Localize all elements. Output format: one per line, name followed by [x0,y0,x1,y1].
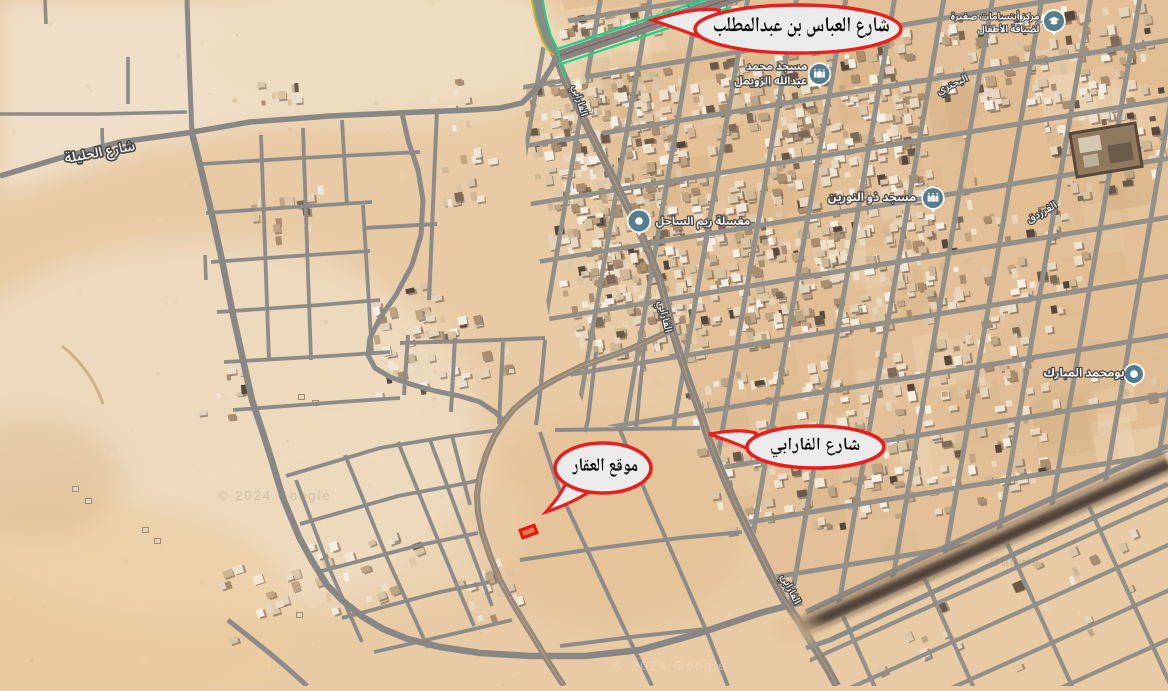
svg-text:Google: Google [990,555,1041,569]
svg-text:© 2024 Google: © 2024 Google [614,658,728,673]
svg-text:© 2024 Google: © 2024 Google [218,488,332,503]
